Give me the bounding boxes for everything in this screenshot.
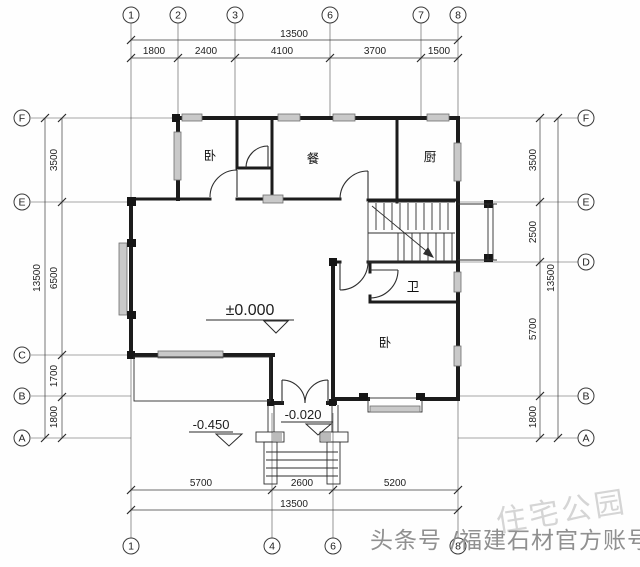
dim-bottom-seg-1: 5700 [190, 478, 213, 489]
axis-bubble-left-C: C [14, 347, 30, 363]
window-right-bedroom [454, 346, 461, 366]
svg-text:8: 8 [455, 10, 461, 22]
door-entrance-double [282, 380, 328, 403]
svg-text:B: B [582, 391, 589, 403]
watermark-account: 头条号 /福建石材官方账号 [370, 528, 640, 554]
svg-text:D: D [582, 257, 590, 269]
axis-bubble-bottom-4: 4 [264, 538, 280, 554]
axis-bubble-right-D: D [578, 254, 594, 270]
terrace-outline [134, 357, 270, 401]
bay-window-bedroom-glass [370, 406, 420, 412]
bay-window-left [119, 243, 127, 315]
room-label-dining: 餐 [307, 151, 320, 166]
svg-text:6: 6 [330, 541, 336, 553]
window-top-dining-2 [333, 114, 355, 121]
dim-left-seg-1: 3500 [49, 148, 60, 171]
svg-text:6: 6 [327, 10, 333, 22]
axis-bubbles: 1 2 3 6 7 8 1 4 6 8 F E C B A F E D B A [14, 7, 594, 554]
axis-bubble-left-B: B [14, 388, 30, 404]
dim-top-seg-3: 4100 [271, 46, 294, 57]
axis-bubble-left-E: E [14, 194, 30, 210]
dim-bottom-seg-3: 5200 [384, 478, 407, 489]
dim-left-total: 13500 [32, 264, 43, 292]
watermarks: 住宅公园 头条号 /福建石材官方账号 [370, 485, 640, 554]
room-label-kitchen: 厨 [424, 149, 437, 164]
window-left-bedroom [174, 132, 181, 180]
level-ground: -0.450 [193, 417, 230, 432]
axis-bubble-right-B: B [578, 388, 594, 404]
dim-top-seg-1: 1800 [143, 46, 166, 57]
axis-bubble-top-6: 6 [322, 7, 338, 23]
dim-left-seg-3: 1700 [49, 364, 60, 387]
axis-bubble-bottom-6: 6 [325, 538, 341, 554]
axis-bubble-right-E: E [578, 194, 594, 210]
floor-plan-canvas: 13500 1800 2400 4100 3700 1500 5700 2600… [0, 0, 640, 567]
axis-bubble-bottom-1: 1 [123, 538, 139, 554]
dim-top-seg-2: 2400 [195, 46, 218, 57]
dim-right-total: 13500 [546, 264, 557, 292]
room-label-bedroom-upper: 卧 [204, 148, 217, 163]
doors [210, 146, 398, 403]
axis-bubble-top-7: 7 [413, 7, 429, 23]
axis-bubble-left-F: F [14, 110, 30, 126]
svg-text:1: 1 [128, 541, 134, 553]
dim-bottom-seg-2: 2600 [291, 478, 314, 489]
level-markers: ±0.000 -0.450 -0.020 [189, 302, 333, 446]
dim-right-seg-4: 1800 [528, 405, 539, 428]
window-dining-living [263, 195, 283, 203]
axis-bubble-top-3: 3 [227, 7, 243, 23]
axis-bubble-top-1: 1 [123, 7, 139, 23]
door-bedroom-lower [340, 262, 368, 290]
dim-left-seg-4: 1800 [49, 405, 60, 428]
door-hall [340, 171, 368, 199]
stair-direction-line [372, 206, 430, 254]
window-right-bathroom [454, 272, 461, 292]
axis-bubble-right-F: F [578, 110, 594, 126]
dim-left-seg-2: 6500 [49, 266, 60, 289]
svg-text:E: E [582, 197, 589, 209]
dim-top-total: 13500 [280, 29, 308, 40]
dim-bottom-total: 13500 [280, 499, 308, 510]
axis-bubble-top-2: 2 [170, 7, 186, 23]
svg-text:F: F [583, 113, 589, 125]
window-right-kitchen [454, 143, 461, 181]
dim-top-seg-4: 3700 [364, 46, 387, 57]
svg-text:4: 4 [269, 541, 275, 553]
svg-text:A: A [582, 433, 589, 445]
level-floor: ±0.000 [226, 302, 275, 319]
dim-top-seg-5: 1500 [428, 46, 451, 57]
svg-text:7: 7 [418, 10, 424, 22]
room-label-bedroom-lower: 卧 [379, 335, 392, 350]
svg-text:B: B [18, 391, 25, 403]
svg-text:1: 1 [128, 10, 134, 22]
stair-direction-arrow [423, 247, 434, 258]
staircase [368, 202, 455, 262]
svg-text:A: A [18, 433, 25, 445]
window-top-dining-1 [278, 114, 300, 121]
dim-right-seg-2: 2500 [528, 220, 539, 243]
door-bedroom-upper [210, 170, 237, 197]
door-bathroom [370, 270, 398, 298]
floor-plan-drawing: 13500 1800 2400 4100 3700 1500 5700 2600… [0, 0, 640, 567]
grid-lines [31, 23, 578, 538]
window-top-bedroom [182, 114, 202, 121]
dim-right-seg-1: 3500 [528, 148, 539, 171]
level-entry: -0.020 [285, 407, 322, 422]
axis-bubble-top-8: 8 [450, 7, 466, 23]
svg-text:C: C [18, 350, 26, 362]
axis-bubble-left-A: A [14, 430, 30, 446]
door-closet [246, 146, 268, 168]
svg-text:3: 3 [232, 10, 238, 22]
axis-bubble-right-A: A [578, 430, 594, 446]
window-top-kitchen [427, 114, 449, 121]
svg-text:2: 2 [175, 10, 181, 22]
svg-text:E: E [18, 197, 25, 209]
room-label-bathroom: 卫 [407, 279, 420, 294]
dim-right-seg-3: 5700 [528, 317, 539, 340]
svg-text:F: F [19, 113, 25, 125]
